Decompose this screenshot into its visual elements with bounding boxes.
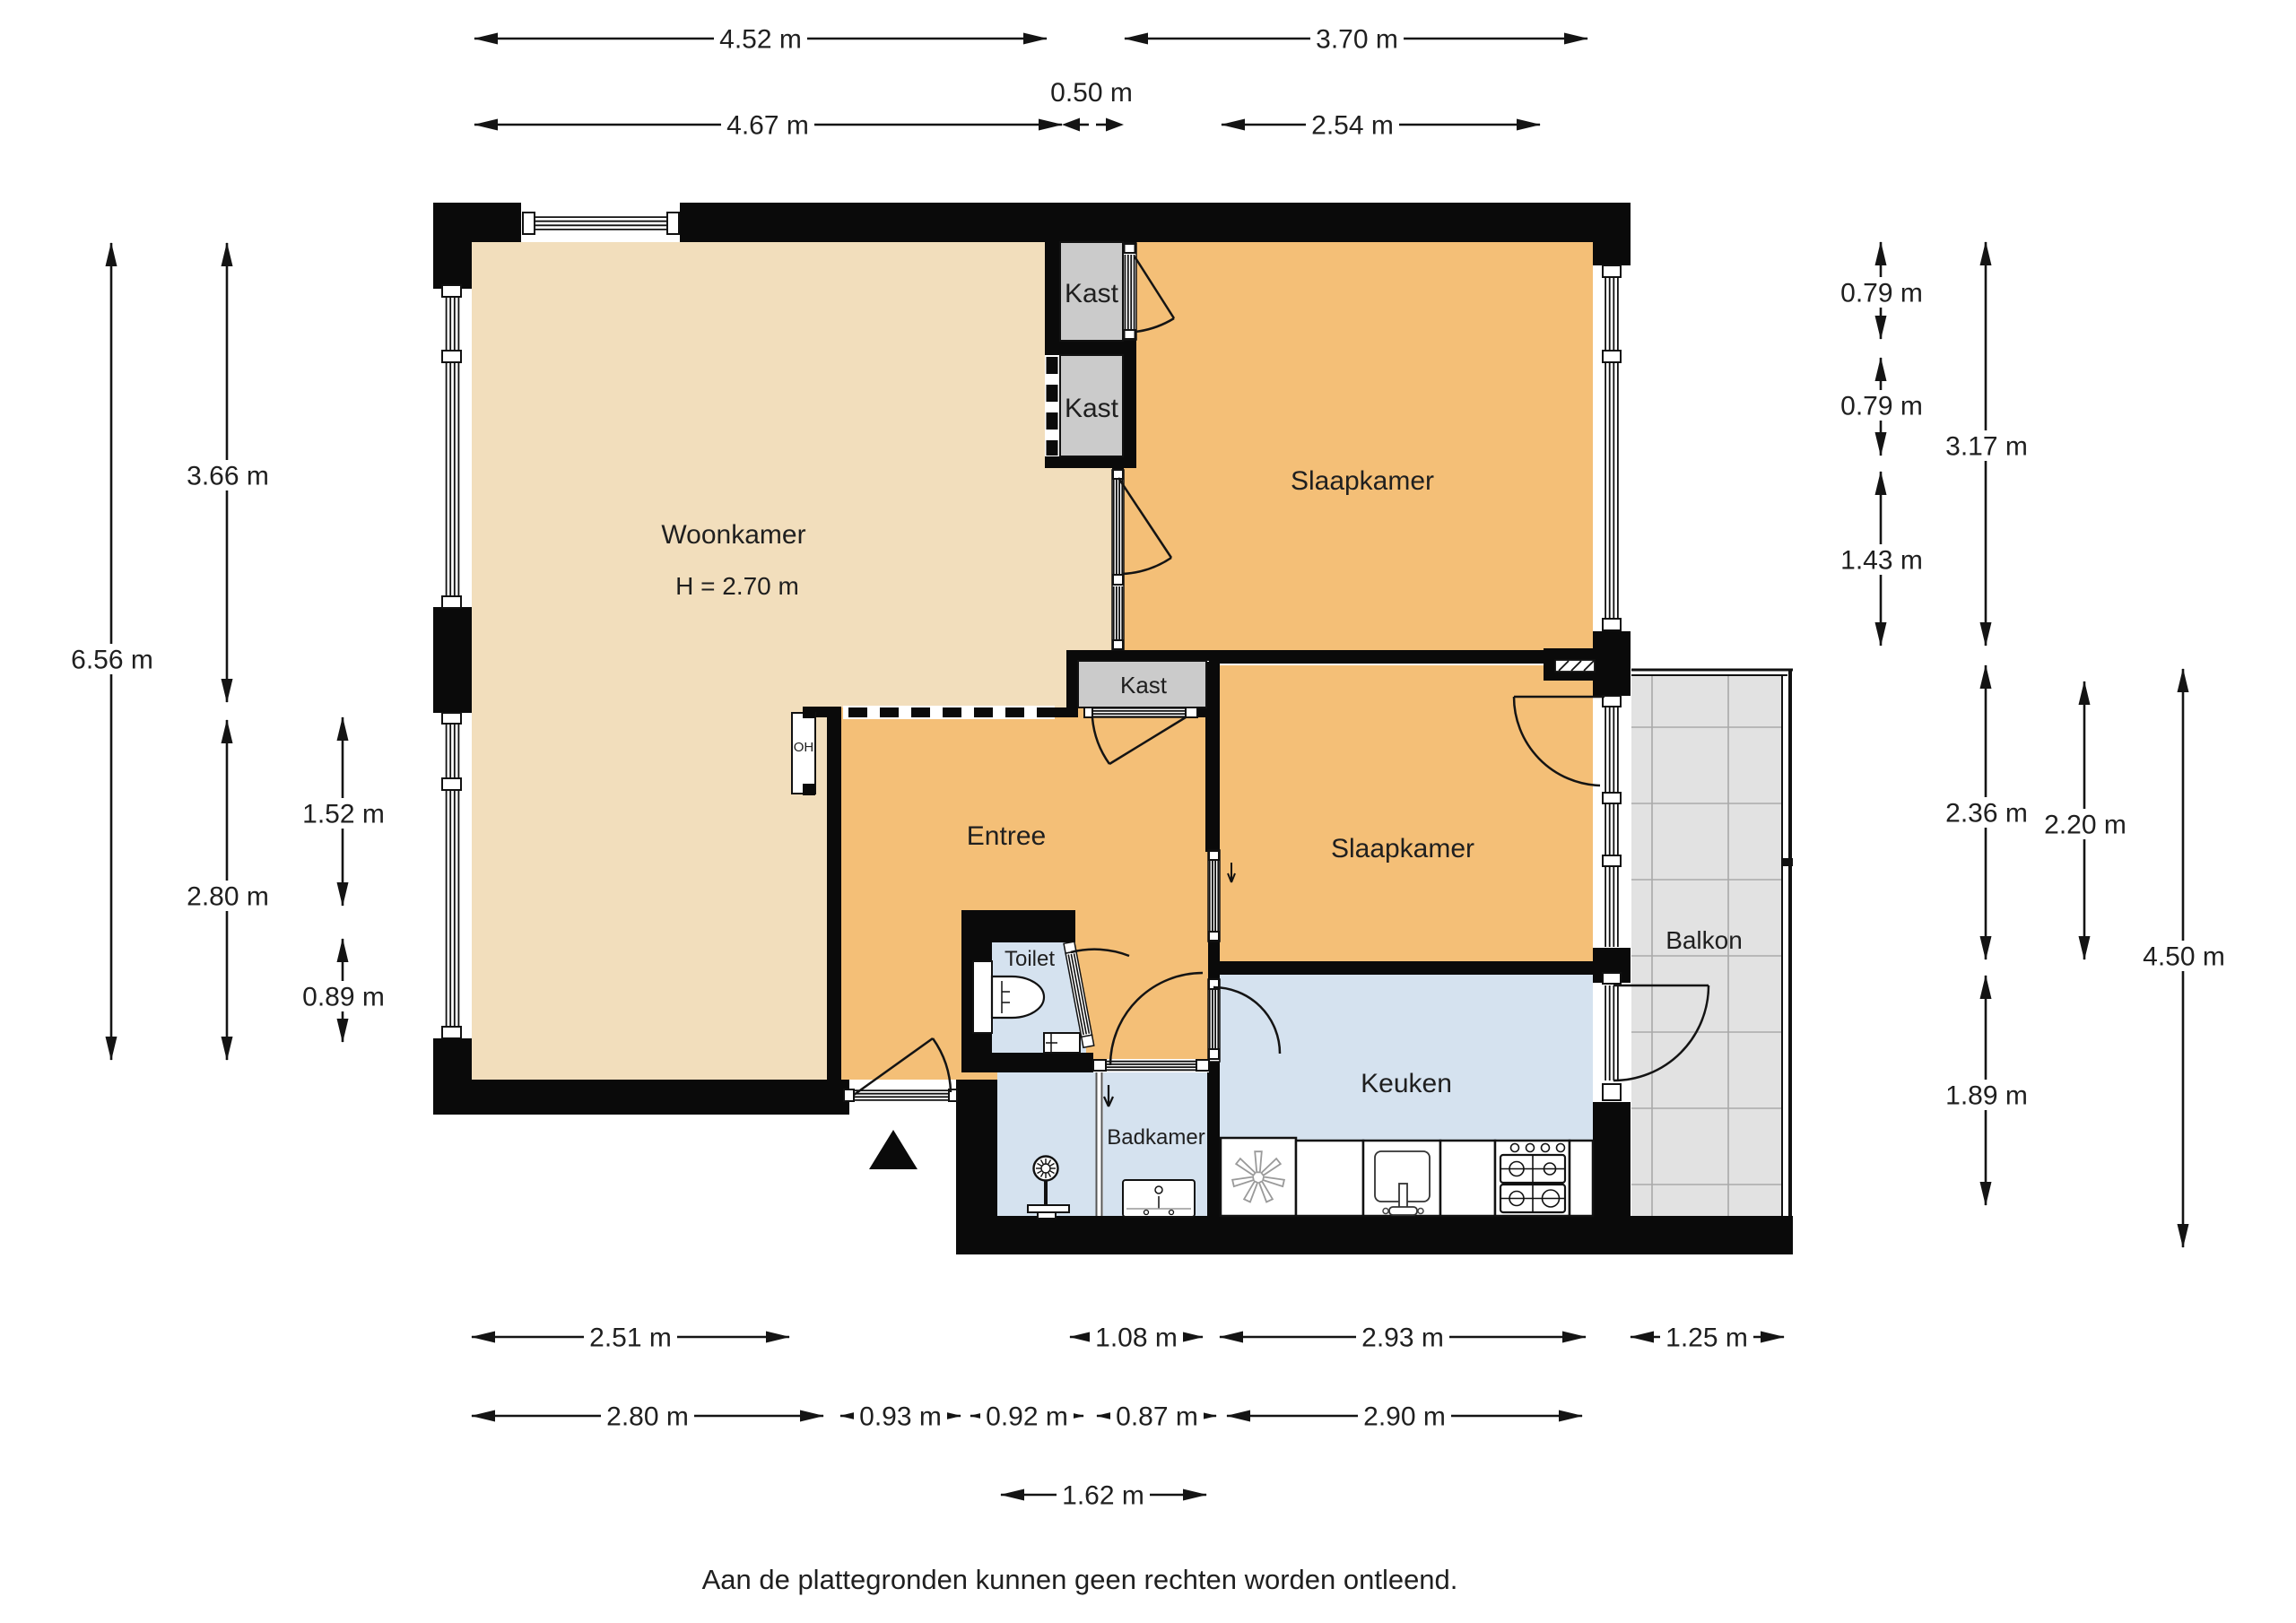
- svg-text:0.92 m: 0.92 m: [986, 1402, 1068, 1432]
- svg-text:2.80 m: 2.80 m: [606, 1402, 689, 1432]
- svg-text:0.79 m: 0.79 m: [1840, 279, 1923, 308]
- svg-text:6.56 m: 6.56 m: [71, 646, 153, 675]
- svg-text:0.89 m: 0.89 m: [302, 983, 385, 1012]
- svg-text:1.89 m: 1.89 m: [1945, 1081, 2028, 1111]
- svg-text:1.62 m: 1.62 m: [1062, 1481, 1144, 1511]
- svg-text:4.67 m: 4.67 m: [726, 111, 809, 141]
- svg-text:2.51 m: 2.51 m: [589, 1324, 672, 1353]
- svg-text:1.25 m: 1.25 m: [1665, 1324, 1748, 1353]
- svg-text:Woonkamer: Woonkamer: [661, 520, 805, 550]
- svg-text:1.52 m: 1.52 m: [302, 800, 385, 829]
- svg-text:2.80 m: 2.80 m: [187, 882, 269, 912]
- svg-text:Slaapkamer: Slaapkamer: [1291, 466, 1434, 496]
- svg-text:0.50 m: 0.50 m: [1050, 78, 1133, 108]
- svg-text:Kast: Kast: [1065, 279, 1119, 308]
- svg-text:Badkamer: Badkamer: [1107, 1125, 1205, 1150]
- svg-text:2.54 m: 2.54 m: [1311, 111, 1394, 141]
- svg-text:4.52 m: 4.52 m: [719, 25, 802, 55]
- svg-text:2.20 m: 2.20 m: [2044, 811, 2126, 840]
- svg-text:2.36 m: 2.36 m: [1945, 799, 2028, 829]
- svg-text:2.93 m: 2.93 m: [1361, 1324, 1444, 1353]
- svg-text:4.50 m: 4.50 m: [2143, 942, 2225, 972]
- svg-text:0.87 m: 0.87 m: [1116, 1402, 1198, 1432]
- svg-text:1.08 m: 1.08 m: [1095, 1324, 1178, 1353]
- svg-text:3.17 m: 3.17 m: [1945, 432, 2028, 462]
- svg-text:OH: OH: [794, 740, 814, 755]
- svg-text:H = 2.70 m: H = 2.70 m: [675, 572, 799, 600]
- svg-text:Kast: Kast: [1065, 394, 1119, 423]
- svg-text:2.90 m: 2.90 m: [1363, 1402, 1446, 1432]
- svg-text:Slaapkamer: Slaapkamer: [1331, 834, 1474, 864]
- svg-text:3.66 m: 3.66 m: [187, 462, 269, 491]
- svg-text:Entree: Entree: [967, 821, 1046, 851]
- svg-text:Balkon: Balkon: [1665, 926, 1743, 954]
- svg-text:Kast: Kast: [1120, 672, 1168, 699]
- svg-text:0.93 m: 0.93 m: [859, 1402, 942, 1432]
- svg-text:Aan de plattegronden kunnen ge: Aan de plattegronden kunnen geen rechten…: [702, 1564, 1458, 1595]
- svg-text:0.79 m: 0.79 m: [1840, 392, 1923, 421]
- svg-text:Keuken: Keuken: [1361, 1069, 1452, 1098]
- svg-text:3.70 m: 3.70 m: [1316, 25, 1398, 55]
- svg-text:1.43 m: 1.43 m: [1840, 546, 1923, 576]
- svg-text:Toilet: Toilet: [1004, 947, 1055, 971]
